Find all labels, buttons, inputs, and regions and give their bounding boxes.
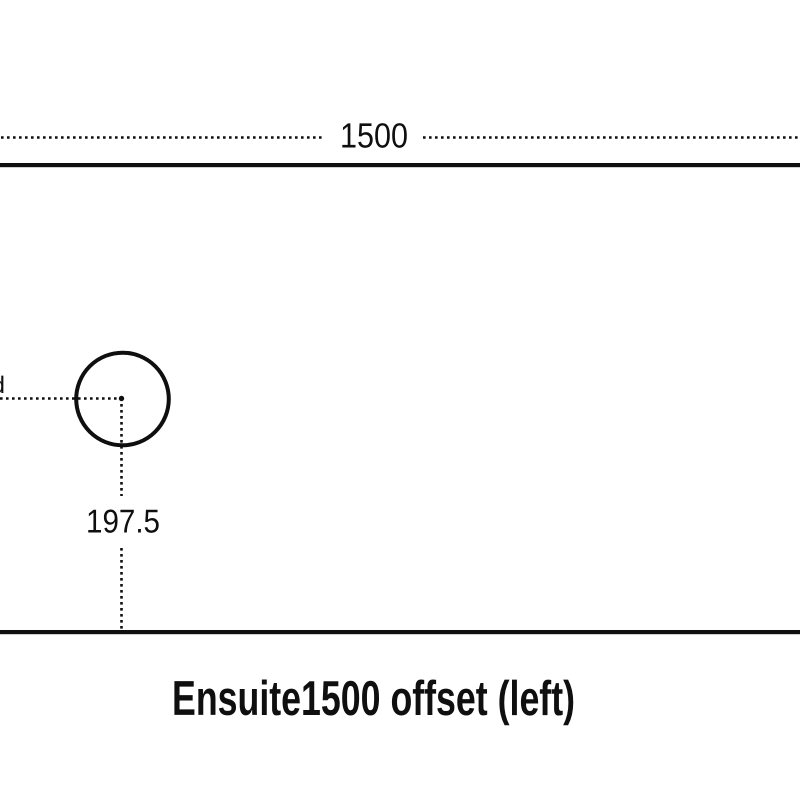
svg-text:197.5: 197.5 bbox=[86, 502, 160, 539]
svg-text:1500: 1500 bbox=[340, 116, 408, 155]
svg-text:Ensuite1500 offset (left): Ensuite1500 offset (left) bbox=[172, 672, 575, 726]
svg-text:d: d bbox=[0, 372, 5, 399]
